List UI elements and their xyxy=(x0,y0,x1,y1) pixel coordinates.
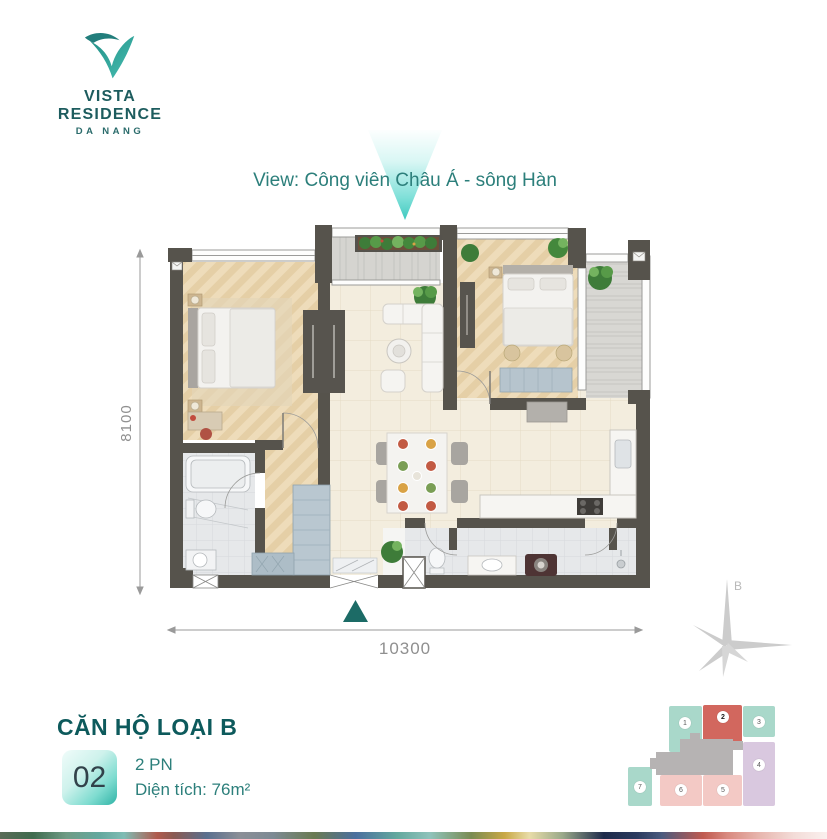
compass-icon: B xyxy=(680,572,800,692)
sofa-side xyxy=(422,304,443,392)
toilet xyxy=(429,548,445,568)
bathroom1-window xyxy=(193,575,218,588)
dining-chair xyxy=(451,442,468,465)
wall-bath2-stub1 xyxy=(449,528,457,550)
compass-north-label: B xyxy=(734,579,742,593)
unit-number-badge: 02 xyxy=(62,750,117,805)
sink xyxy=(193,553,207,567)
drawer-unit xyxy=(252,553,294,575)
wardrobe-tv-unit xyxy=(303,310,345,393)
plant-icon xyxy=(461,244,479,262)
lamp-icon xyxy=(191,402,199,410)
armchair xyxy=(381,370,405,392)
duvet xyxy=(504,308,572,345)
brand-name: VISTA RESIDENCE xyxy=(30,88,190,124)
dimension-height: 8100 xyxy=(118,250,143,594)
lamp-icon xyxy=(191,296,199,304)
pillow xyxy=(202,313,215,346)
toilet-tank xyxy=(430,568,444,574)
keyplan-core xyxy=(680,739,733,753)
kitchen-cabinet xyxy=(527,402,567,422)
brand-block: VISTA RESIDENCE DA NANG xyxy=(30,22,190,137)
keyplan-core xyxy=(690,733,700,739)
unit-title: CĂN HỘ LOẠI B xyxy=(57,714,237,741)
pouf xyxy=(556,345,572,361)
pillow xyxy=(202,350,215,383)
dimension-height-label: 8100 xyxy=(118,404,135,441)
flower-icon xyxy=(190,415,196,421)
dimension-width: 10300 xyxy=(168,627,642,658)
pouf xyxy=(504,345,520,361)
keyplan-unit-2-number: 2 xyxy=(717,711,729,723)
keyplan-unit-4-number: 4 xyxy=(753,759,765,771)
toilet xyxy=(196,500,216,518)
balcony-top-rail xyxy=(586,254,628,262)
toilet-tank xyxy=(186,500,194,518)
pillow xyxy=(540,278,566,290)
dining-chair xyxy=(451,480,468,503)
building-keyplan: 1 2 3 4 5 6 7 xyxy=(620,695,785,815)
bench-cabinet xyxy=(500,368,572,392)
wall-top-left-corner xyxy=(168,248,192,262)
sink xyxy=(482,559,502,571)
wall-loggia-left xyxy=(315,225,332,283)
keyplan-unit-7-number: 7 xyxy=(634,781,646,793)
bottom-color-strip xyxy=(0,832,827,839)
bed-headboard xyxy=(503,265,573,274)
wall-bath2-c xyxy=(617,518,636,528)
keyplan-core xyxy=(656,752,733,775)
brand-city: DA NANG xyxy=(30,126,190,137)
loggia-sliding-door xyxy=(332,280,440,285)
keyplan-core xyxy=(733,741,743,750)
vanity-chair xyxy=(200,428,212,440)
unit-info: 2 PN Diện tích: 76m² xyxy=(135,752,250,802)
wall-bath2-b xyxy=(457,518,585,528)
bedroom2-balcony-door xyxy=(578,268,586,390)
keyplan-unit-5-number: 5 xyxy=(717,784,729,796)
brochure-page: VISTA RESIDENCE DA NANG View: Công viên … xyxy=(0,0,827,839)
unit-bedrooms: 2 PN xyxy=(135,752,250,777)
entrance-arrow-icon xyxy=(343,600,368,622)
kitchen-sink xyxy=(615,440,631,468)
wall-bedroom2-right xyxy=(568,228,586,268)
vanity-table xyxy=(188,412,222,430)
wall-left xyxy=(170,248,183,588)
shower-head-icon xyxy=(617,560,625,568)
entry xyxy=(330,558,378,622)
keyplan-unit-4 xyxy=(743,742,775,806)
keyplan-unit-6-number: 6 xyxy=(675,784,687,796)
planter-box xyxy=(355,235,442,252)
keyplan-unit-1-number: 1 xyxy=(679,717,691,729)
unit-area: Diện tích: 76m² xyxy=(135,777,250,802)
view-label: View: Công viên Châu Á - sông Hàn xyxy=(155,170,655,192)
wall-bathroom1-right-a xyxy=(255,443,265,473)
duvet xyxy=(230,309,275,387)
keyplan-unit-3-number: 3 xyxy=(753,716,765,728)
wall-bathroom1-top xyxy=(183,443,255,453)
wall-bottom-left-corner xyxy=(170,568,193,588)
wall-right xyxy=(636,398,650,588)
door-mat xyxy=(333,558,377,573)
pillow xyxy=(508,278,534,290)
lamp-icon xyxy=(492,268,500,276)
wall-bath2-a xyxy=(405,518,425,528)
wall-bottom-a xyxy=(218,575,330,588)
wall-bedroom2-left xyxy=(443,225,457,410)
keyplan-core xyxy=(650,758,656,769)
wall-balcony-bottom xyxy=(628,390,650,404)
dimension-width-label: 10300 xyxy=(379,639,431,658)
bed-headboard xyxy=(188,308,198,388)
kitchen-counter xyxy=(480,495,636,518)
floorplan: 8100 10300 xyxy=(100,220,660,670)
